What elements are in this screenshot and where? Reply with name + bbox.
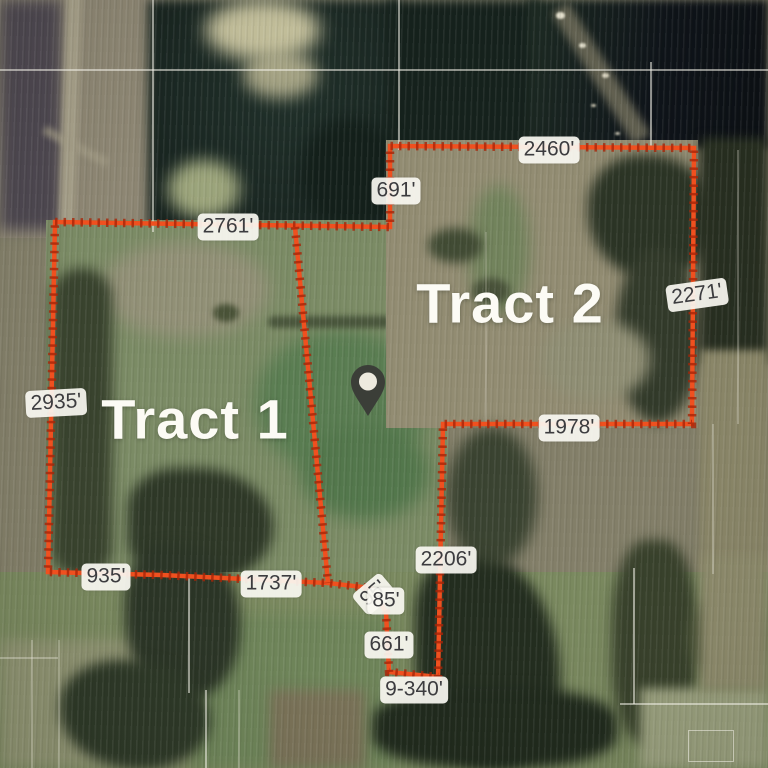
grid-line bbox=[58, 640, 60, 768]
segment-label-2460: 2460' bbox=[519, 137, 580, 164]
grid-line bbox=[712, 424, 714, 574]
water-deep bbox=[300, 118, 400, 230]
sand-bar bbox=[243, 52, 318, 98]
tree-line bbox=[700, 138, 768, 363]
brush-dot bbox=[428, 228, 483, 263]
segment-label-691: 691' bbox=[371, 178, 420, 205]
tract-1-label: Tract 1 bbox=[101, 387, 289, 452]
grid-line bbox=[188, 575, 190, 693]
green-meadow bbox=[300, 425, 430, 520]
shore-rocks bbox=[556, 12, 565, 19]
grid-line bbox=[620, 703, 768, 705]
grid-line bbox=[31, 640, 33, 768]
field-patch bbox=[700, 555, 768, 690]
grid-line bbox=[205, 690, 207, 768]
segment-label-1978: 1978' bbox=[539, 415, 600, 442]
brush-dot bbox=[213, 304, 239, 322]
segment-label-661: 661' bbox=[364, 632, 413, 659]
field-patch bbox=[270, 690, 365, 768]
field-area bbox=[700, 350, 768, 580]
segment-label-1737: 1737' bbox=[241, 571, 302, 598]
aerial-tract-map: 2935' 2761' 691' 2460' 2271' 1978' 2206'… bbox=[0, 0, 768, 768]
segment-label-2935: 2935' bbox=[25, 388, 87, 418]
tract-2-label: Tract 2 bbox=[416, 271, 604, 336]
grid-line bbox=[0, 657, 58, 659]
segment-label-2206: 2206' bbox=[416, 547, 477, 574]
grid-line bbox=[0, 69, 768, 71]
grid-line bbox=[633, 568, 635, 704]
sand-bar bbox=[168, 160, 240, 218]
field-patch bbox=[100, 242, 270, 337]
grid-line bbox=[398, 0, 400, 150]
segment-label-2761: 2761' bbox=[198, 214, 259, 241]
segment-label-85: 85' bbox=[367, 588, 404, 615]
grid-line bbox=[650, 62, 652, 148]
grid-line bbox=[238, 690, 240, 768]
sand-bar bbox=[205, 0, 320, 60]
segment-label-340: 9-340' bbox=[380, 677, 448, 704]
water-area bbox=[388, 0, 540, 152]
brush-row bbox=[268, 316, 393, 328]
field-shadow bbox=[0, 0, 62, 230]
grid-line bbox=[152, 0, 154, 232]
survey-rectangle bbox=[688, 730, 734, 762]
segment-label-935: 935' bbox=[81, 564, 130, 591]
grid-line bbox=[737, 150, 739, 424]
